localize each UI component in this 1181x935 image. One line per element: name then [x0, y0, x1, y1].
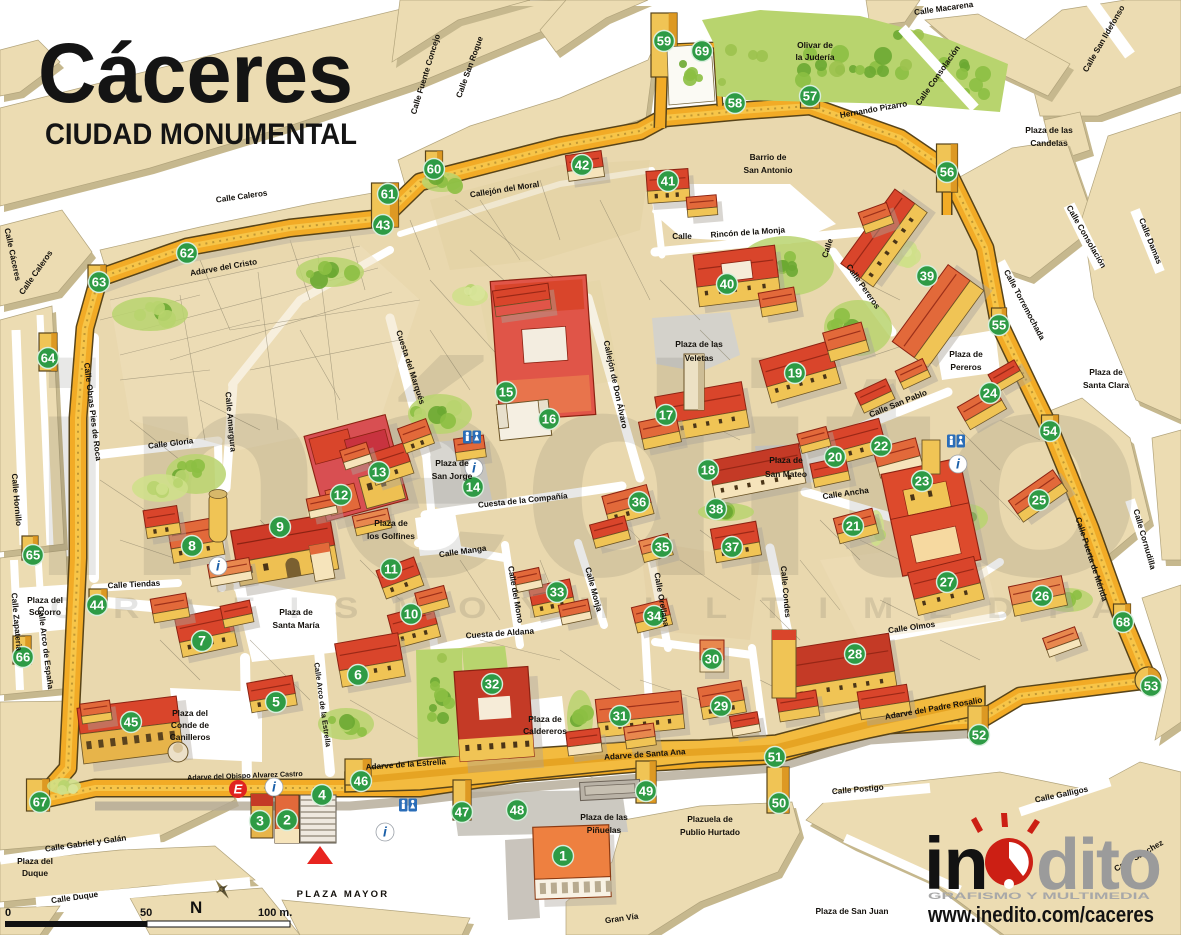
svg-text:53: 53 — [1144, 678, 1158, 693]
svg-text:GRAFISMO Y MULTIMEDIA: GRAFISMO Y MULTIMEDIA — [928, 891, 1151, 901]
svg-text:Conde de: Conde de — [171, 720, 209, 730]
svg-text:40: 40 — [720, 276, 734, 291]
svg-text:0: 0 — [5, 907, 11, 919]
svg-text:62: 62 — [180, 245, 194, 260]
svg-text:12: 12 — [334, 487, 348, 502]
svg-text:50: 50 — [772, 795, 786, 810]
svg-text:1: 1 — [559, 847, 567, 863]
svg-text:6: 6 — [354, 666, 362, 682]
svg-text:19: 19 — [788, 365, 802, 380]
svg-text:14: 14 — [466, 479, 481, 494]
svg-text:24: 24 — [983, 385, 998, 400]
svg-text:35: 35 — [655, 539, 669, 554]
svg-text:63: 63 — [92, 274, 106, 289]
svg-text:68: 68 — [1116, 614, 1130, 629]
svg-text:41: 41 — [661, 173, 675, 188]
svg-text:E: E — [234, 782, 243, 797]
svg-text:33: 33 — [550, 584, 564, 599]
svg-text:Barrio de: Barrio de — [750, 152, 787, 162]
svg-text:45: 45 — [124, 714, 138, 729]
svg-text:Plaza de: Plaza de — [279, 607, 313, 617]
svg-text:43: 43 — [376, 217, 390, 232]
svg-text:Plaza de las: Plaza de las — [1025, 125, 1073, 135]
svg-text:55: 55 — [992, 317, 1006, 332]
svg-text:5: 5 — [272, 693, 280, 709]
svg-text:2: 2 — [283, 811, 291, 827]
svg-text:9: 9 — [276, 518, 284, 534]
svg-text:Piñuelas: Piñuelas — [587, 825, 622, 835]
svg-text:66: 66 — [16, 649, 30, 664]
svg-text:22: 22 — [874, 438, 888, 453]
svg-text:Plaza de las: Plaza de las — [580, 812, 628, 822]
svg-text:Publio Hurtado: Publio Hurtado — [680, 827, 740, 837]
svg-text:13: 13 — [372, 464, 386, 479]
svg-text:8: 8 — [188, 537, 196, 553]
svg-text:Plaza de: Plaza de — [949, 349, 983, 359]
svg-text:Duque: Duque — [22, 868, 48, 878]
svg-text:Plaza de: Plaza de — [435, 458, 469, 468]
svg-text:Plaza de: Plaza de — [1089, 367, 1123, 377]
svg-text:Plaza del: Plaza del — [172, 708, 208, 718]
svg-text:San Jorge: San Jorge — [432, 471, 473, 481]
svg-text:la Judería: la Judería — [795, 52, 834, 62]
svg-text:20: 20 — [828, 449, 842, 464]
svg-text:Canilleros: Canilleros — [170, 732, 211, 742]
svg-text:64: 64 — [41, 350, 56, 365]
svg-text:Plaza de: Plaza de — [374, 518, 408, 528]
svg-text:los Golfines: los Golfines — [367, 531, 415, 541]
svg-text:San Mateo: San Mateo — [765, 469, 807, 479]
svg-text:11: 11 — [384, 561, 398, 576]
svg-text:42: 42 — [575, 157, 589, 172]
svg-text:56: 56 — [940, 164, 954, 179]
svg-text:23: 23 — [915, 473, 929, 488]
svg-text:10: 10 — [404, 606, 418, 621]
svg-text:17: 17 — [659, 407, 673, 422]
svg-text:4: 4 — [318, 786, 326, 802]
svg-text:37: 37 — [725, 539, 739, 554]
svg-text:58: 58 — [728, 95, 742, 110]
svg-text:N: N — [190, 898, 202, 917]
svg-text:29: 29 — [714, 698, 728, 713]
svg-text:Santa María: Santa María — [272, 620, 319, 630]
svg-text:65: 65 — [26, 547, 40, 562]
svg-text:54: 54 — [1043, 423, 1058, 438]
svg-text:69: 69 — [695, 43, 709, 58]
svg-text:Socorro: Socorro — [29, 607, 61, 617]
svg-text:30: 30 — [705, 651, 719, 666]
svg-text:Olivar de: Olivar de — [797, 40, 833, 50]
svg-text:32: 32 — [485, 676, 499, 691]
svg-text:7: 7 — [198, 632, 206, 648]
svg-text:39: 39 — [920, 268, 934, 283]
svg-text:Plaza de San Juan: Plaza de San Juan — [815, 906, 888, 916]
svg-text:Caldereros: Caldereros — [523, 726, 567, 736]
svg-text:San Antonio: San Antonio — [743, 165, 792, 175]
svg-text:47: 47 — [455, 804, 469, 819]
svg-text:Plaza de: Plaza de — [528, 714, 562, 724]
svg-text:Veletas: Veletas — [685, 353, 714, 363]
svg-text:59: 59 — [657, 33, 671, 48]
svg-text:Plaza del: Plaza del — [27, 595, 63, 605]
svg-text:Candelas: Candelas — [1030, 138, 1068, 148]
svg-text:100 m.: 100 m. — [258, 907, 292, 919]
svg-text:25: 25 — [1032, 492, 1046, 507]
svg-text:67: 67 — [33, 794, 47, 809]
svg-text:21: 21 — [846, 518, 860, 533]
svg-text:PLAZA MAYOR: PLAZA MAYOR — [297, 889, 390, 900]
svg-text:18: 18 — [701, 462, 715, 477]
svg-text:50: 50 — [140, 907, 152, 919]
svg-text:44: 44 — [90, 597, 105, 612]
svg-text:28: 28 — [848, 646, 862, 661]
svg-text:52: 52 — [972, 727, 986, 742]
svg-text:49: 49 — [639, 783, 653, 798]
svg-text:Plaza del: Plaza del — [17, 856, 53, 866]
svg-text:Plazuela de: Plazuela de — [687, 814, 733, 824]
svg-text:27: 27 — [940, 574, 954, 589]
svg-text:16: 16 — [542, 411, 556, 426]
svg-text:Calle: Calle — [672, 232, 692, 241]
svg-text:Plaza de: Plaza de — [769, 455, 803, 465]
svg-text:3: 3 — [256, 812, 264, 828]
svg-text:57: 57 — [803, 88, 817, 103]
svg-text:46: 46 — [354, 773, 368, 788]
svg-text:15: 15 — [499, 384, 513, 399]
svg-text:CIUDAD MONUMENTAL: CIUDAD MONUMENTAL — [45, 118, 357, 151]
svg-text:Santa Clara: Santa Clara — [1083, 380, 1129, 390]
svg-text:60: 60 — [427, 161, 441, 176]
svg-text:61: 61 — [381, 186, 395, 201]
svg-text:26: 26 — [1035, 588, 1049, 603]
svg-text:38: 38 — [709, 501, 723, 516]
svg-text:51: 51 — [768, 749, 782, 764]
svg-text:Pereros: Pereros — [950, 362, 982, 372]
svg-text:Plaza de las: Plaza de las — [675, 339, 723, 349]
svg-text:www.inedito.com/caceres: www.inedito.com/caceres — [927, 902, 1154, 927]
svg-text:31: 31 — [613, 708, 627, 723]
svg-text:48: 48 — [510, 802, 524, 817]
svg-text:Cáceres: Cáceres — [38, 26, 353, 120]
svg-text:36: 36 — [632, 494, 646, 509]
